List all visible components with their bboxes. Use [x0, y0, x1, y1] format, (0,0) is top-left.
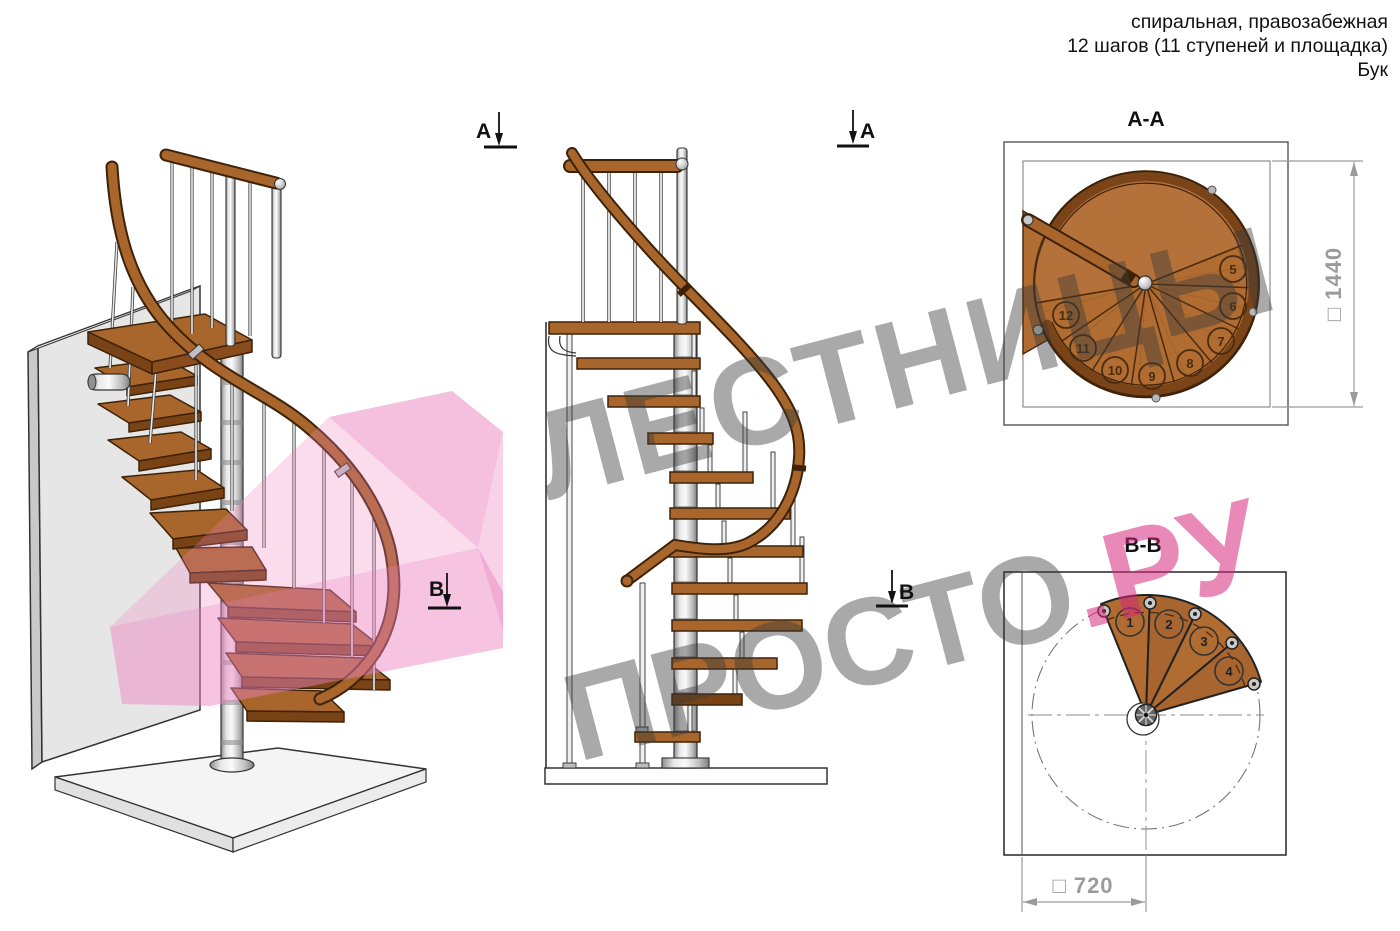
step-number: 4 — [1225, 664, 1233, 679]
rail-ball-joint — [676, 158, 688, 170]
rail-connector-sleeve — [792, 464, 806, 471]
section-arrow-icon — [495, 133, 503, 146]
stair-drawing: 5 6 7 8 9 10 11 12 □ 1440 А-А — [0, 0, 1400, 931]
header-line-material: Бук — [1357, 59, 1388, 81]
marker-letter: A — [476, 120, 491, 143]
landing-bar — [549, 322, 700, 334]
dimension-label-720: □ 720 — [1052, 873, 1113, 898]
marker-letter: A — [860, 120, 875, 143]
watermark-line2-accent: .РУ — [1055, 473, 1278, 656]
dimension-label-1440: □ 1440 — [1321, 247, 1346, 321]
wall-handle — [88, 374, 130, 390]
iso-view — [28, 155, 503, 852]
step-number: 9 — [1148, 369, 1155, 384]
marker-a-left: A — [476, 112, 517, 147]
marker-a-right: A — [837, 110, 875, 146]
svg-text:ПРОСТО.РУ: ПРОСТО.РУ — [550, 473, 1278, 788]
rail-ball-joint — [275, 179, 286, 190]
column-base-flange — [210, 758, 254, 772]
newel-post — [677, 148, 687, 324]
drawing-sheet: 5 6 7 8 9 10 11 12 □ 1440 А-А — [0, 0, 1400, 931]
marker-letter: B — [429, 578, 444, 601]
rail-connector — [1208, 186, 1216, 194]
rail-end-cap — [622, 576, 633, 587]
section-arrow-icon — [849, 131, 857, 144]
header: спиральная, правозабежная 12 шагов (11 с… — [1067, 11, 1388, 81]
section-aa-title: А-А — [1127, 108, 1164, 131]
rail-end-cap — [1023, 215, 1033, 225]
step-number: 3 — [1200, 634, 1207, 649]
newel-post — [226, 168, 235, 346]
header-line-steps: 12 шагов (11 ступеней и площадка) — [1067, 35, 1388, 57]
rail-connector — [1152, 394, 1160, 402]
newel-post — [272, 186, 281, 358]
dimension-1440 — [1272, 161, 1363, 407]
watermark-line2-gray: ПРОСТО — [550, 522, 1090, 788]
column-hub — [1127, 703, 1159, 735]
marker-letter: B — [899, 581, 914, 604]
header-line-type: спиральная, правозабежная — [1131, 11, 1388, 33]
